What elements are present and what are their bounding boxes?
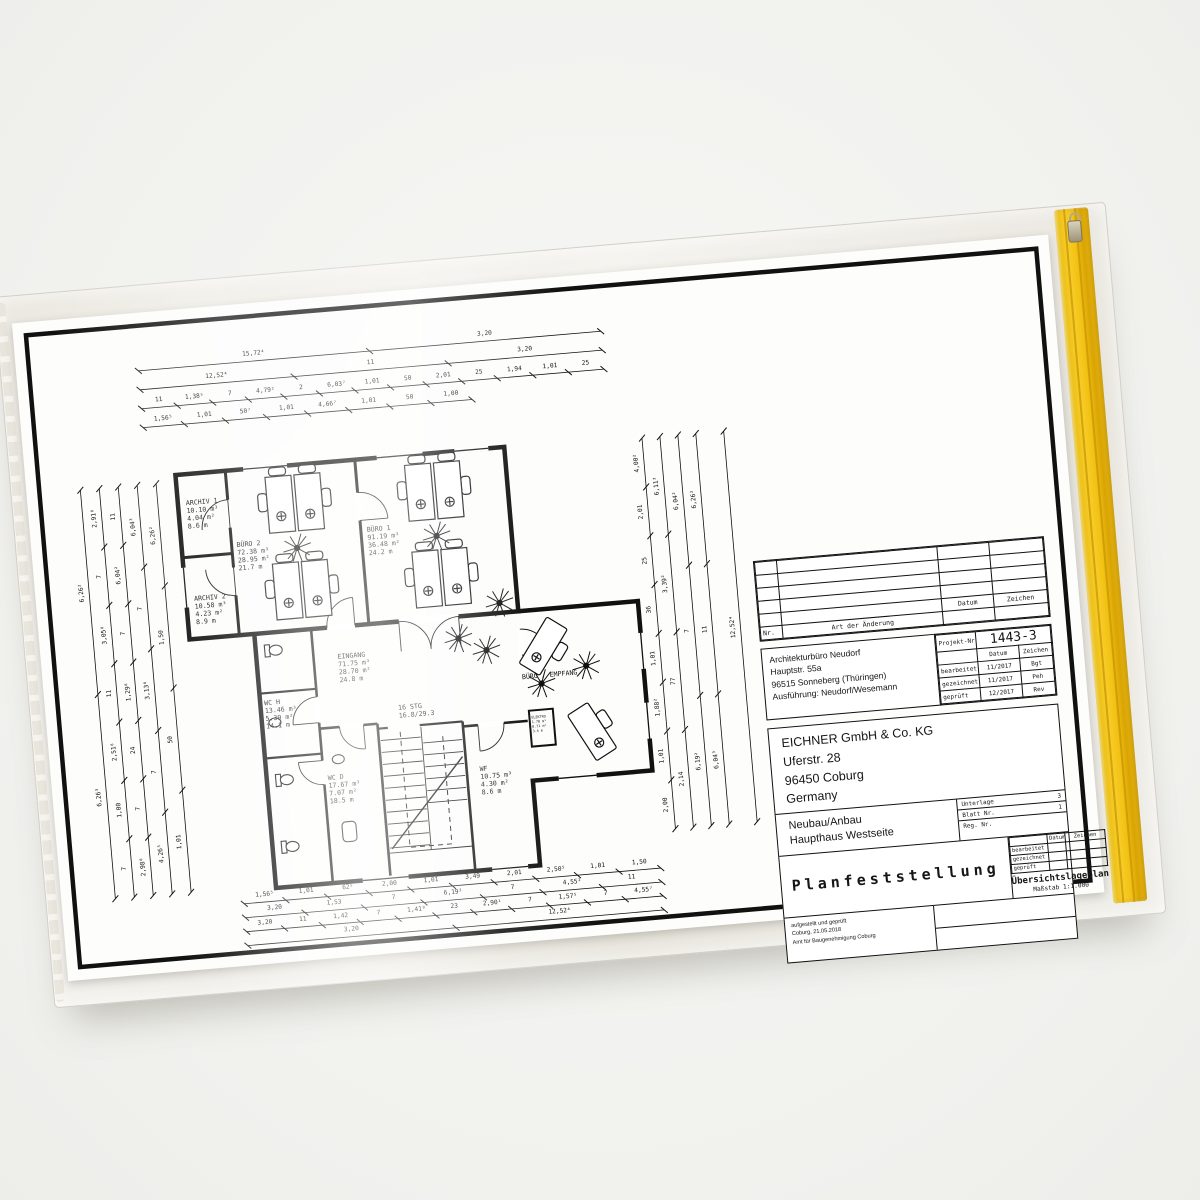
svg-text:7: 7 (228, 390, 233, 397)
svg-text:4,55⁷: 4,55⁷ (634, 886, 653, 895)
blatt-value: 1 (1058, 803, 1062, 810)
svg-text:25: 25 (582, 359, 590, 367)
title-block: Datum Zeichen Nr. Art der Änderung Archi… (753, 536, 1078, 963)
svg-text:7: 7 (391, 894, 396, 901)
svg-text:6,04³: 6,04³ (129, 517, 138, 536)
svg-text:12,52⁴: 12,52⁴ (205, 371, 228, 380)
svg-text:6,03⁷: 6,03⁷ (327, 380, 346, 389)
svg-text:1,29⁸: 1,29⁸ (124, 682, 133, 701)
svg-text:2,01: 2,01 (436, 371, 452, 379)
svg-text:50: 50 (406, 393, 414, 401)
project-row-sign: Rev (1022, 681, 1056, 697)
project-row-label: geprüft (940, 688, 981, 704)
svg-text:1,38⁵: 1,38⁵ (185, 392, 204, 401)
svg-text:1,42: 1,42 (333, 912, 349, 920)
svg-text:50: 50 (404, 375, 412, 383)
dim-chains: 15,72⁴3,20 12,52⁴113,20 111,38⁵74,79²26,… (59, 310, 768, 960)
svg-text:ARCHIV 210.58 m³4.23 m²8.9 m: ARCHIV 210.58 m³4.23 m²8.9 m (194, 592, 228, 626)
unterlage-value: 3 (1057, 792, 1061, 799)
svg-text:1,01: 1,01 (590, 862, 606, 870)
svg-text:BÜRO 272.38 m³28.95 m²21.7 m: BÜRO 272.38 m³28.95 m²21.7 m (236, 537, 270, 572)
svg-text:11: 11 (628, 873, 636, 881)
zipper-slider-icon (1062, 212, 1084, 244)
svg-text:6,04³: 6,04³ (712, 750, 721, 769)
svg-text:7: 7 (376, 909, 381, 916)
svg-text:1,01: 1,01 (197, 411, 213, 419)
svg-text:1,50: 1,50 (632, 858, 648, 866)
svg-text:2,00: 2,00 (662, 797, 670, 813)
unterlage-label: Unterlage (961, 798, 994, 808)
svg-text:1,01: 1,01 (423, 876, 439, 884)
svg-text:7: 7 (121, 866, 128, 871)
svg-text:25: 25 (641, 557, 649, 565)
svg-text:7: 7 (137, 606, 144, 611)
svg-text:2,14: 2,14 (678, 771, 686, 787)
svg-text:4,26³: 4,26³ (157, 844, 166, 863)
svg-text:EINGANG71.75 m³28.70 m²24.8 m: EINGANG71.75 m³28.70 m²24.8 m (337, 650, 371, 684)
svg-text:2,98⁸: 2,98⁸ (139, 857, 148, 876)
approval-title: Planfeststellung (791, 859, 1000, 895)
architect-project-row: Architekturbüro Neudorf Hauptstr. 55a 96… (760, 624, 1057, 721)
svg-text:77: 77 (670, 677, 678, 685)
svg-text:2,01: 2,01 (637, 504, 645, 520)
svg-text:WC H13.46 m³5.39 m²14.1 m: WC H13.46 m³5.39 m²14.1 m (264, 697, 298, 731)
svg-text:3,49: 3,49 (465, 873, 481, 881)
svg-text:11: 11 (155, 396, 163, 404)
svg-text:4,66⁷: 4,66⁷ (318, 400, 337, 409)
svg-text:6,26³: 6,26³ (95, 788, 104, 807)
svg-text:2,91⁸: 2,91⁸ (90, 509, 99, 528)
svg-text:1,01: 1,01 (298, 887, 314, 895)
svg-text:1,01: 1,01 (175, 834, 183, 850)
svg-text:7: 7 (510, 884, 515, 891)
stairs (378, 723, 473, 853)
svg-text:11: 11 (109, 513, 117, 521)
reg-label: Reg. Nr. (963, 820, 992, 829)
stairs-label-2: 16.8/29.3 (398, 709, 434, 720)
architect-address: Architekturbüro Neudorf Hauptstr. 55a 96… (760, 634, 941, 721)
svg-text:1,01: 1,01 (658, 748, 666, 764)
svg-text:50⁷: 50⁷ (239, 407, 251, 415)
svg-text:11: 11 (367, 359, 375, 367)
svg-text:6,19²: 6,19² (443, 888, 462, 897)
project-row-date: 12/2017 (980, 684, 1023, 701)
svg-text:2,51⁸: 2,51⁸ (110, 742, 119, 761)
svg-text:1,01: 1,01 (364, 377, 380, 385)
svg-text:2,00: 2,00 (382, 880, 398, 888)
svg-text:7: 7 (151, 770, 158, 775)
svg-text:6,26²: 6,26² (77, 583, 86, 602)
svg-text:1,88²: 1,88² (653, 698, 662, 717)
svg-text:3,20: 3,20 (517, 345, 533, 353)
svg-text:3,39²: 3,39² (661, 574, 670, 593)
svg-text:11: 11 (701, 625, 709, 633)
svg-text:6,19²: 6,19² (694, 752, 703, 771)
product-photo: ARCHIV 110.10 m³4.04 m²8.6 m BÜRO 272.38… (0, 0, 1200, 1200)
svg-text:11: 11 (106, 689, 114, 697)
svg-text:1,50: 1,50 (158, 630, 166, 646)
svg-text:1,41⁸: 1,41⁸ (407, 905, 426, 914)
svg-text:2,01: 2,01 (507, 869, 523, 877)
svg-text:23: 23 (450, 903, 458, 911)
svg-text:3,05⁸: 3,05⁸ (100, 626, 109, 645)
svg-text:15,72⁴: 15,72⁴ (242, 349, 265, 358)
blatt-label: Blatt Nr. (962, 809, 995, 819)
svg-text:1,53: 1,53 (326, 898, 342, 906)
client-block: EICHNER GmbH & Co. KG Uferstr. 28 96450 … (767, 704, 1078, 964)
svg-text:4,00²: 4,00² (632, 454, 641, 473)
svg-text:1,57⁵: 1,57⁵ (558, 892, 577, 901)
svg-text:7: 7 (604, 890, 609, 897)
svg-text:1,56⁵: 1,56⁵ (154, 414, 173, 423)
svg-text:4,79²: 4,79² (256, 386, 275, 395)
svg-text:3,20: 3,20 (257, 918, 273, 926)
svg-text:3,20: 3,20 (344, 925, 360, 933)
svg-text:ARCHIV 110.10 m³4.04 m²8.6 m: ARCHIV 110.10 m³4.04 m²8.6 m (186, 497, 220, 531)
svg-text:1,01: 1,01 (649, 650, 657, 666)
svg-text:12,52⁴: 12,52⁴ (728, 616, 737, 639)
svg-text:1,01: 1,01 (542, 362, 558, 370)
svg-text:7: 7 (96, 574, 103, 579)
svg-text:1,94: 1,94 (507, 365, 523, 373)
svg-text:25: 25 (475, 368, 483, 376)
svg-text:1,01: 1,01 (279, 404, 295, 412)
svg-text:36: 36 (645, 605, 653, 613)
room-labels: ARCHIV 110.10 m³4.04 m²8.6 m BÜRO 272.38… (186, 467, 588, 819)
svg-text:6,11³: 6,11³ (652, 476, 661, 495)
svg-text:12,52⁴: 12,52⁴ (548, 907, 571, 916)
svg-text:WC D17.67 m³7.07 m²18.5 m: WC D17.67 m³7.07 m²18.5 m (328, 771, 362, 805)
svg-text:1,00: 1,00 (115, 802, 123, 818)
svg-text:1,00: 1,00 (443, 390, 459, 398)
svg-text:6,26²: 6,26² (149, 526, 158, 545)
svg-text:3,20: 3,20 (267, 904, 283, 912)
svg-text:4,55²: 4,55² (562, 878, 581, 887)
svg-text:6,04²: 6,04² (672, 491, 681, 510)
project-number-table: Projekt-Nr.: 1443-3 Datum Zeichen bearbe… (934, 624, 1058, 706)
svg-text:2,90¹: 2,90¹ (483, 899, 502, 908)
svg-text:1,01: 1,01 (361, 397, 377, 405)
svg-text:BÜRO 191.19 m³36.48 m²24.2 m: BÜRO 191.19 m³36.48 m²24.2 m (366, 522, 400, 557)
svg-text:WF10.75 m³4.30 m²8.6 m: WF10.75 m³4.30 m²8.6 m (479, 762, 513, 796)
svg-text:2: 2 (299, 384, 304, 391)
svg-text:7: 7 (683, 629, 690, 634)
svg-text:2,50⁵: 2,50⁵ (546, 865, 565, 874)
svg-text:62⁵: 62⁵ (342, 883, 354, 891)
svg-text:24: 24 (129, 746, 137, 754)
svg-text:7: 7 (135, 806, 142, 811)
rev-nr-header: Nr. (760, 625, 783, 640)
plan-sleeve: ARCHIV 110.10 m³4.04 m²8.6 m BÜRO 272.38… (0, 202, 1166, 1009)
svg-text:3,13⁸: 3,13⁸ (143, 681, 152, 700)
furniture-group (255, 440, 626, 788)
plan-sheet: ARCHIV 110.10 m³4.04 m²8.6 m BÜRO 272.38… (12, 235, 1105, 981)
svg-text:11: 11 (299, 915, 307, 923)
reg-value (1063, 814, 1064, 821)
svg-text:50: 50 (167, 735, 175, 743)
svg-text:6,26²: 6,26² (690, 490, 699, 509)
svg-text:3,20: 3,20 (477, 330, 493, 338)
plan-type-box: Datum Zeichen bearbeitet gezeichnet gepr… (1007, 829, 1110, 898)
svg-text:ELEKTRO1.78 m³0.71 m²3.4 m: ELEKTRO1.78 m³0.71 m²3.4 m (531, 714, 547, 733)
svg-text:1,56⁵: 1,56⁵ (255, 890, 274, 899)
svg-text:7: 7 (120, 631, 127, 636)
svg-text:6,04²: 6,04² (114, 566, 123, 585)
svg-text:7: 7 (528, 896, 533, 903)
